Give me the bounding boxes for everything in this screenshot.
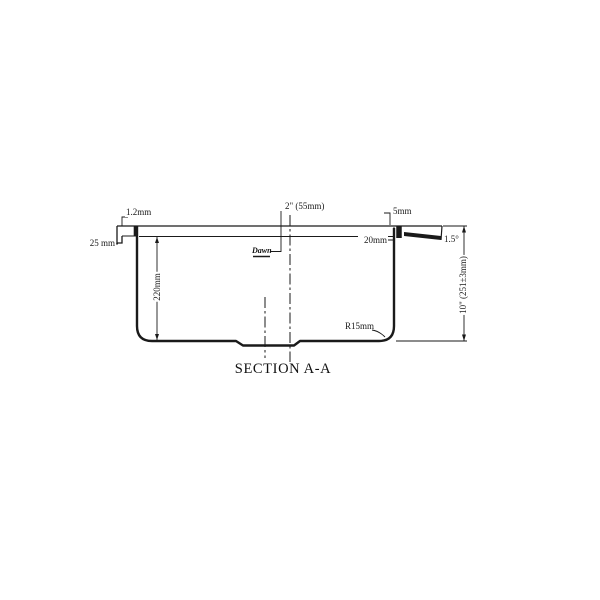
dim-label-drain-offset: 2" (55mm) xyxy=(284,201,325,211)
dim-label-rim-step: 5mm xyxy=(392,206,413,216)
right-rim-ledge-band xyxy=(404,232,441,240)
brand-logo: Dawn xyxy=(252,246,272,255)
leader-rim-step xyxy=(384,213,390,225)
dim-label-bowl-depth: 220mm xyxy=(152,272,162,302)
dim-label-material-thickness: 1.2mm xyxy=(125,207,152,217)
dim-label-rim-ledge-width: 20mm xyxy=(358,235,388,245)
leader-material-thickness xyxy=(122,217,128,226)
dim-label-overall-depth: 10" (251±3mm) xyxy=(458,255,468,315)
dim-label-rim-slope-angle: 1.5° xyxy=(443,234,460,244)
rim-right-edge xyxy=(441,226,442,240)
section-view-title: SECTION A-A xyxy=(235,361,331,378)
dim-label-rim-lip-height: 25 mm xyxy=(88,238,116,248)
leader-corner-radius xyxy=(372,330,385,337)
technical-drawing-page: 1.2mm 25 mm 220mm 2" (55mm) 5mm 20mm 1.5… xyxy=(0,0,600,600)
section-drawing xyxy=(0,0,600,600)
dim-label-corner-radius: R15mm xyxy=(344,321,375,331)
left-rim-lip xyxy=(117,226,122,243)
